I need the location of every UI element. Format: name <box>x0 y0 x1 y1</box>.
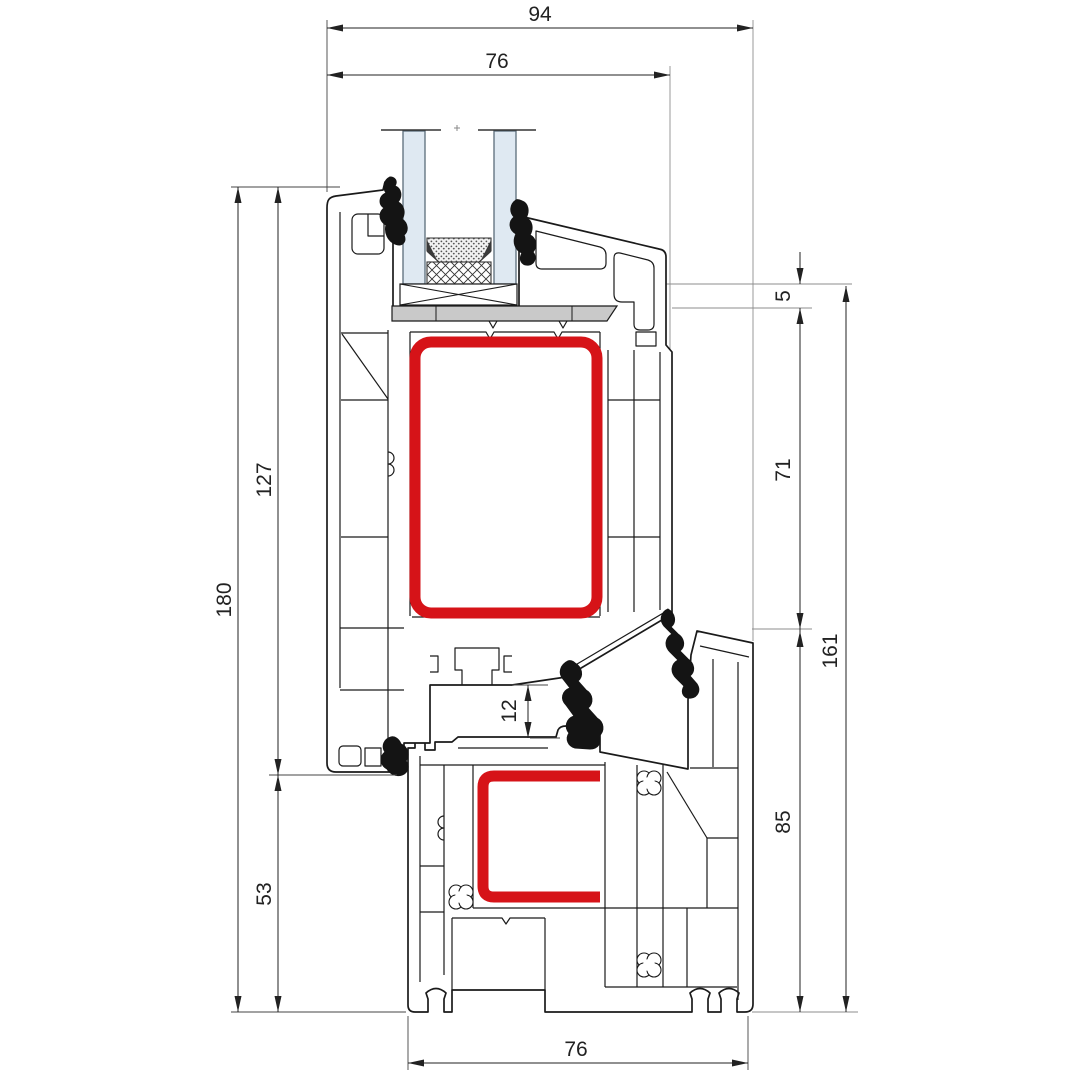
dim-label-85: 85 <box>772 810 795 833</box>
dim-label-5: 5 <box>772 290 795 302</box>
dim-label-127: 127 <box>253 462 276 497</box>
dim-label-12: 12 <box>498 699 521 722</box>
dim-label-53: 53 <box>253 882 276 905</box>
dim-label-161: 161 <box>819 633 842 668</box>
profile-section-svg: 94 76 180 127 53 5 71 161 85 12 76 <box>0 0 1080 1080</box>
center-tick <box>454 125 460 131</box>
spacer-bar <box>427 238 491 262</box>
secondary-seal-hatch <box>427 262 491 284</box>
dim-label-180: 180 <box>213 582 236 617</box>
dim-label-71: 71 <box>772 458 795 481</box>
dim-label-94: 94 <box>528 3 552 26</box>
glass-pane-outer <box>403 131 425 284</box>
dim-label-76-top: 76 <box>485 50 508 73</box>
dim-label-76-bottom: 76 <box>564 1038 587 1061</box>
technical-drawing-canvas: 94 76 180 127 53 5 71 161 85 12 76 <box>0 0 1080 1080</box>
glazing-bridge <box>392 306 617 321</box>
